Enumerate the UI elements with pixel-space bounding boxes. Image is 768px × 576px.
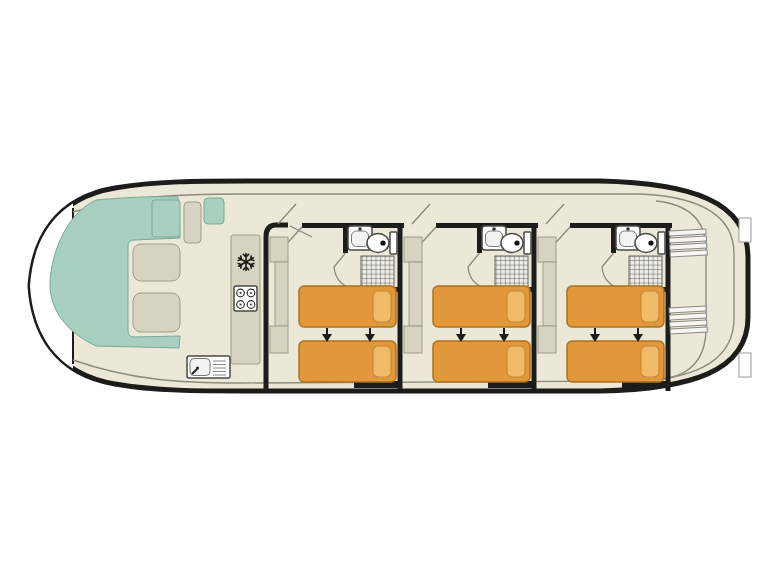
side-bench xyxy=(204,198,224,224)
houseboat-deck-plan xyxy=(0,0,768,576)
stern-step-notch xyxy=(739,353,751,377)
galley-sink-icon xyxy=(187,356,230,378)
side-bench xyxy=(152,200,180,237)
dinette-table xyxy=(133,293,180,332)
stove-icon xyxy=(234,286,257,311)
dinette-table xyxy=(133,244,180,281)
helm-seat xyxy=(184,202,201,243)
stern-step-notch xyxy=(739,218,751,242)
